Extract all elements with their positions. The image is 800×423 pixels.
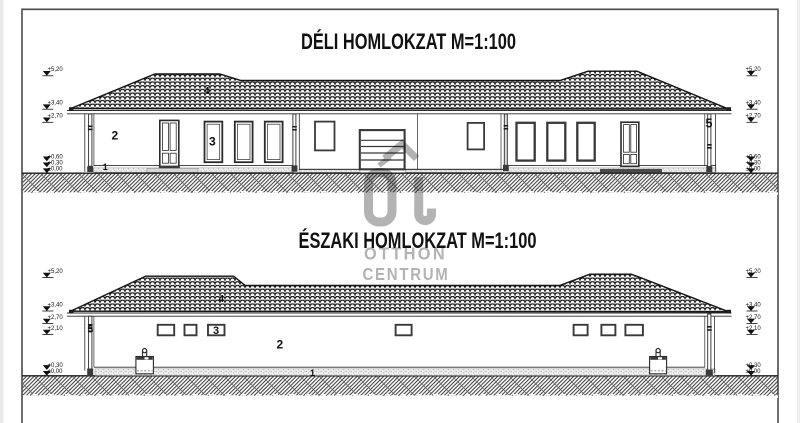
svg-text:+2,70: +2,70 (746, 114, 762, 120)
svg-text:+2,70: +2,70 (746, 315, 762, 321)
svg-text:±0,00: ±0,00 (48, 166, 64, 172)
svg-text:+2,10: +2,10 (48, 326, 64, 332)
svg-text:5: 5 (88, 325, 94, 336)
svg-text:+3,40: +3,40 (48, 101, 64, 107)
svg-text:3: 3 (209, 135, 216, 149)
svg-text:1: 1 (310, 368, 315, 378)
svg-text:4: 4 (219, 294, 225, 305)
svg-text:+5,20: +5,20 (48, 269, 64, 275)
svg-text:±0,00: ±0,00 (746, 369, 762, 375)
svg-text:+5,20: +5,20 (746, 269, 762, 275)
svg-text:4: 4 (204, 86, 210, 97)
svg-text:+2,70: +2,70 (48, 315, 64, 321)
svg-text:+2,10: +2,10 (746, 326, 762, 332)
svg-text:±0,00: ±0,00 (48, 369, 64, 375)
svg-text:CENTRUM: CENTRUM (363, 264, 450, 284)
svg-text:+3,40: +3,40 (746, 302, 762, 308)
svg-text:+3,40: +3,40 (48, 302, 64, 308)
svg-text:+5,20: +5,20 (746, 67, 762, 73)
svg-text:±0,00: ±0,00 (746, 166, 762, 172)
svg-text:2: 2 (112, 129, 119, 143)
svg-text:2: 2 (277, 338, 284, 352)
svg-text:3: 3 (213, 325, 219, 337)
svg-text:1: 1 (103, 162, 108, 172)
svg-text:5: 5 (706, 117, 713, 131)
svg-text:DÉLI HOMLOKZAT M=1:100: DÉLI HOMLOKZAT M=1:100 (301, 29, 516, 54)
svg-text:+2,70: +2,70 (48, 114, 64, 120)
svg-text:OTTHON: OTTHON (364, 244, 447, 264)
svg-text:+5,20: +5,20 (48, 67, 64, 73)
svg-text:+3,40: +3,40 (746, 101, 762, 107)
